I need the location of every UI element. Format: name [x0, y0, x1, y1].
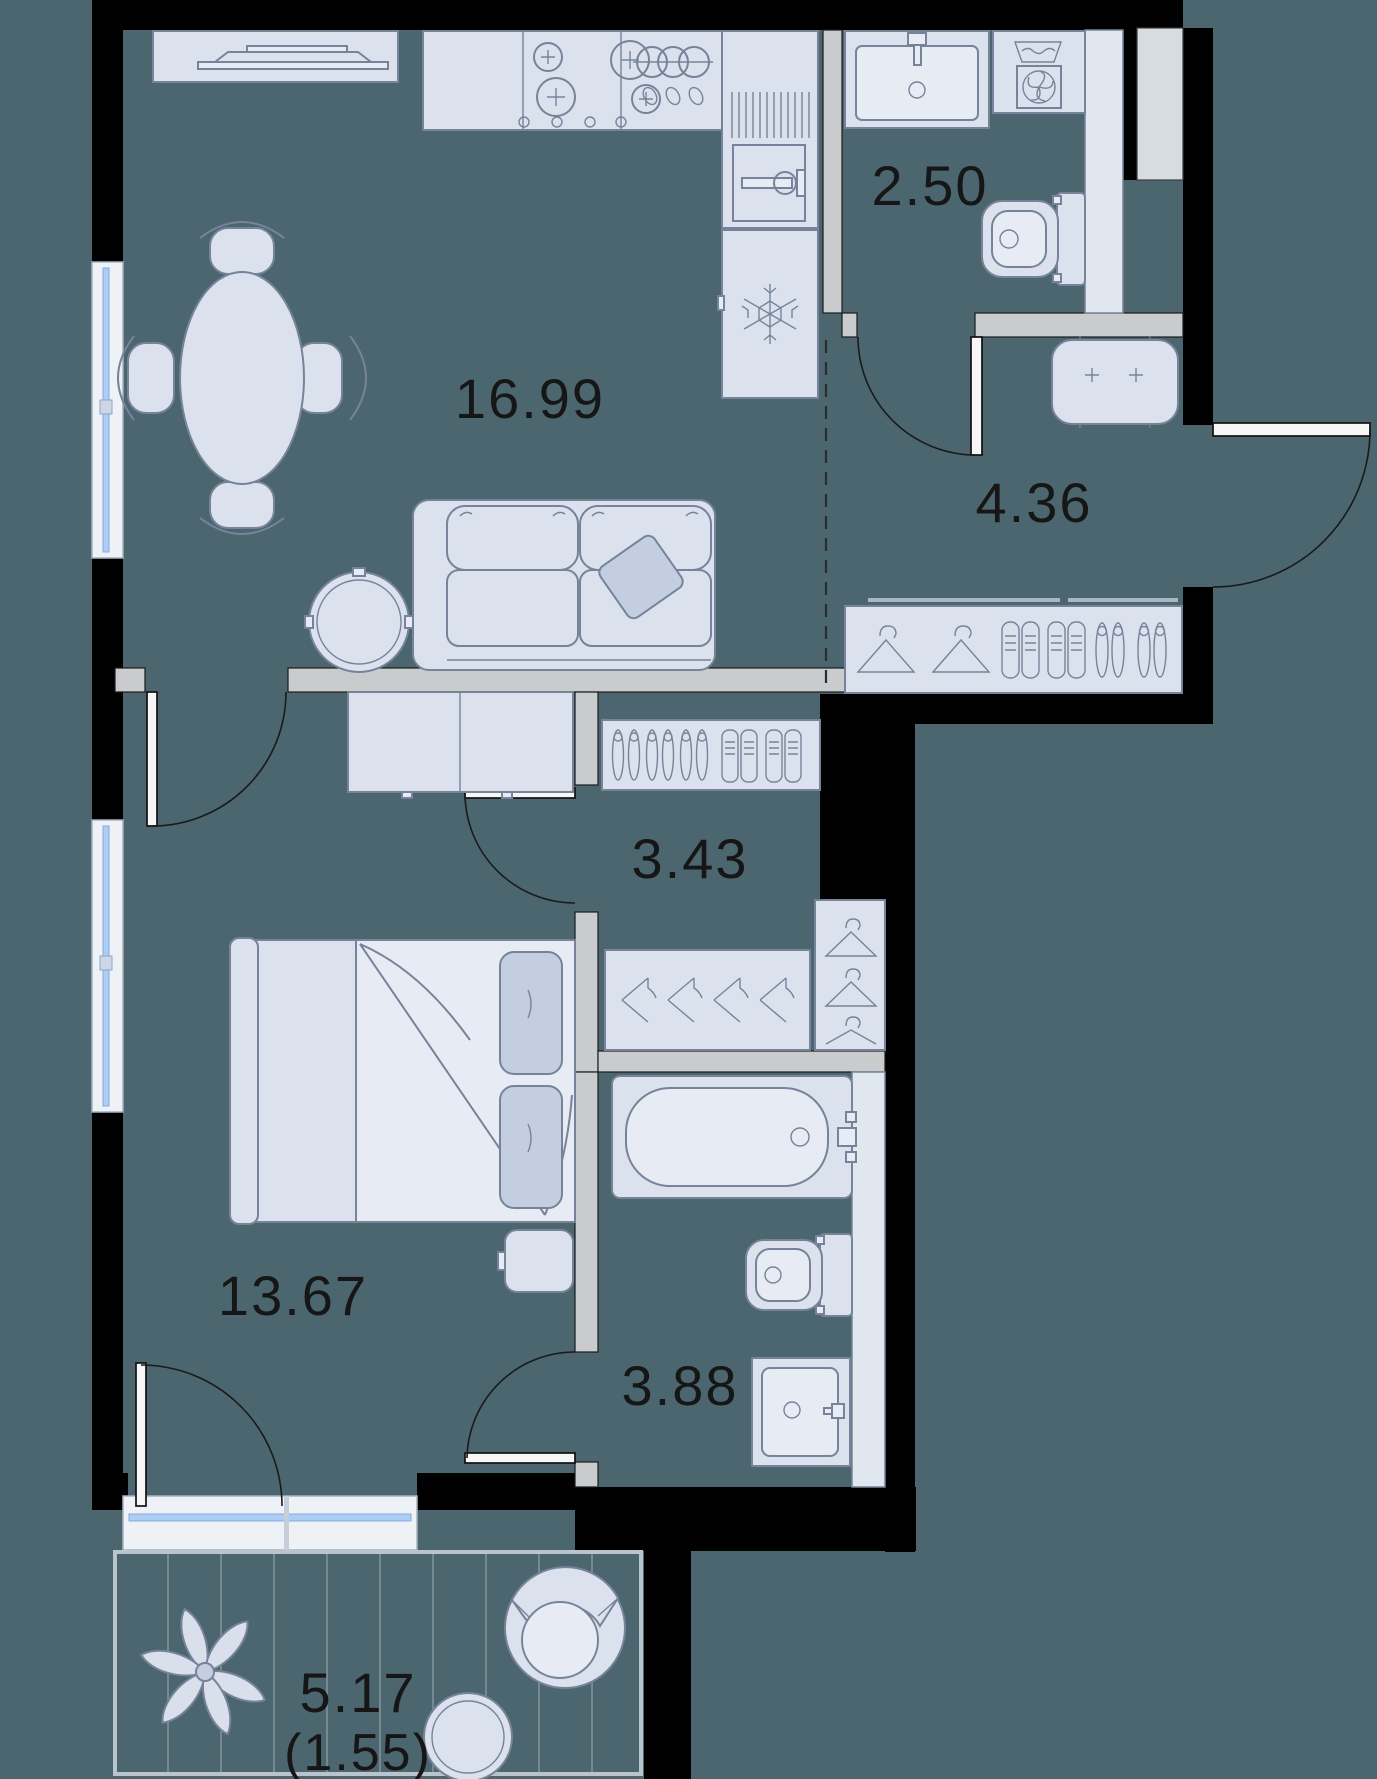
partition-corridor-south [598, 1051, 885, 1072]
pouf [1052, 336, 1178, 428]
label-living-kitchen: 16.99 [455, 367, 605, 430]
bathroom-sink [845, 31, 989, 128]
wall-corridor-east-chunk [820, 694, 885, 900]
shoe-rack [602, 720, 820, 790]
toilet-main [746, 1234, 852, 1316]
partition-living-south [288, 668, 885, 692]
partition-bedroom-east-2 [575, 912, 598, 1072]
nightstand [498, 1230, 573, 1292]
wall-left-low [92, 1112, 123, 1473]
partition-bath-west [575, 1072, 598, 1352]
partition-doorframe-left [115, 668, 145, 692]
wall-niche-left [1123, 30, 1137, 180]
wall-hallway-south [885, 692, 1213, 724]
bathtub [612, 1076, 856, 1198]
door-living-bedroom [147, 692, 286, 826]
label-balcony-reduced: (1.55) [284, 1724, 432, 1779]
partition-bath-west-stub [575, 1462, 598, 1487]
plant-icon [139, 1606, 270, 1738]
pillow [500, 952, 562, 1074]
door-bathroom-guest [858, 337, 982, 455]
partition-bath-south-left [842, 313, 857, 337]
hallway-wardrobe [845, 598, 1182, 693]
label-bathroom-guest: 2.50 [872, 154, 989, 217]
label-bathroom-main: 3.88 [622, 1354, 739, 1417]
fridge-icon [718, 230, 818, 398]
wall-south-bathroom [575, 1487, 916, 1551]
balcony-glazing [123, 1496, 417, 1550]
coffee-table [305, 568, 413, 672]
door-balcony [136, 1363, 282, 1506]
label-hallway: 4.36 [976, 471, 1093, 534]
door-bathroom-main [465, 1352, 575, 1463]
pillow [500, 1086, 562, 1208]
door-corridor-bedroom [465, 788, 575, 903]
wall-right-upper [1183, 28, 1213, 425]
toilet-guest [982, 193, 1085, 285]
vent-duct [1085, 30, 1123, 313]
wall-left-top [92, 0, 123, 262]
armchair [505, 1567, 625, 1688]
kitchen-counter [423, 31, 722, 130]
partition-kitchen-bath [823, 30, 842, 313]
label-corridor: 3.43 [632, 827, 749, 890]
label-balcony-total: 5.17 [300, 1661, 417, 1724]
wall-east [885, 692, 915, 1552]
corridor-cabinet [348, 692, 573, 798]
wall-balcony-divider [644, 1551, 691, 1779]
bed [230, 938, 575, 1224]
washing-machine-icon [993, 31, 1085, 113]
tv-stand [153, 31, 398, 82]
door-entrance [1213, 423, 1370, 587]
sofa [413, 500, 715, 670]
partition-bath-south-right [975, 313, 1183, 337]
label-bedroom: 13.67 [218, 1264, 368, 1327]
window-living [92, 262, 123, 558]
side-table [424, 1693, 512, 1779]
partition-bedroom-east-1 [575, 692, 598, 785]
bedroom-wardrobe [605, 900, 885, 1050]
oven-icon [722, 31, 818, 228]
floor-plan: 16.99 2.50 4.36 3.43 13.67 3.88 5.17 (1.… [0, 0, 1377, 1779]
wall-top [100, 0, 1183, 30]
wall-south-bedroom [417, 1473, 575, 1510]
building-shaft [1137, 28, 1183, 180]
dining-table [118, 222, 366, 534]
bathroom-sink-main [752, 1358, 850, 1466]
window-bedroom [92, 820, 123, 1112]
